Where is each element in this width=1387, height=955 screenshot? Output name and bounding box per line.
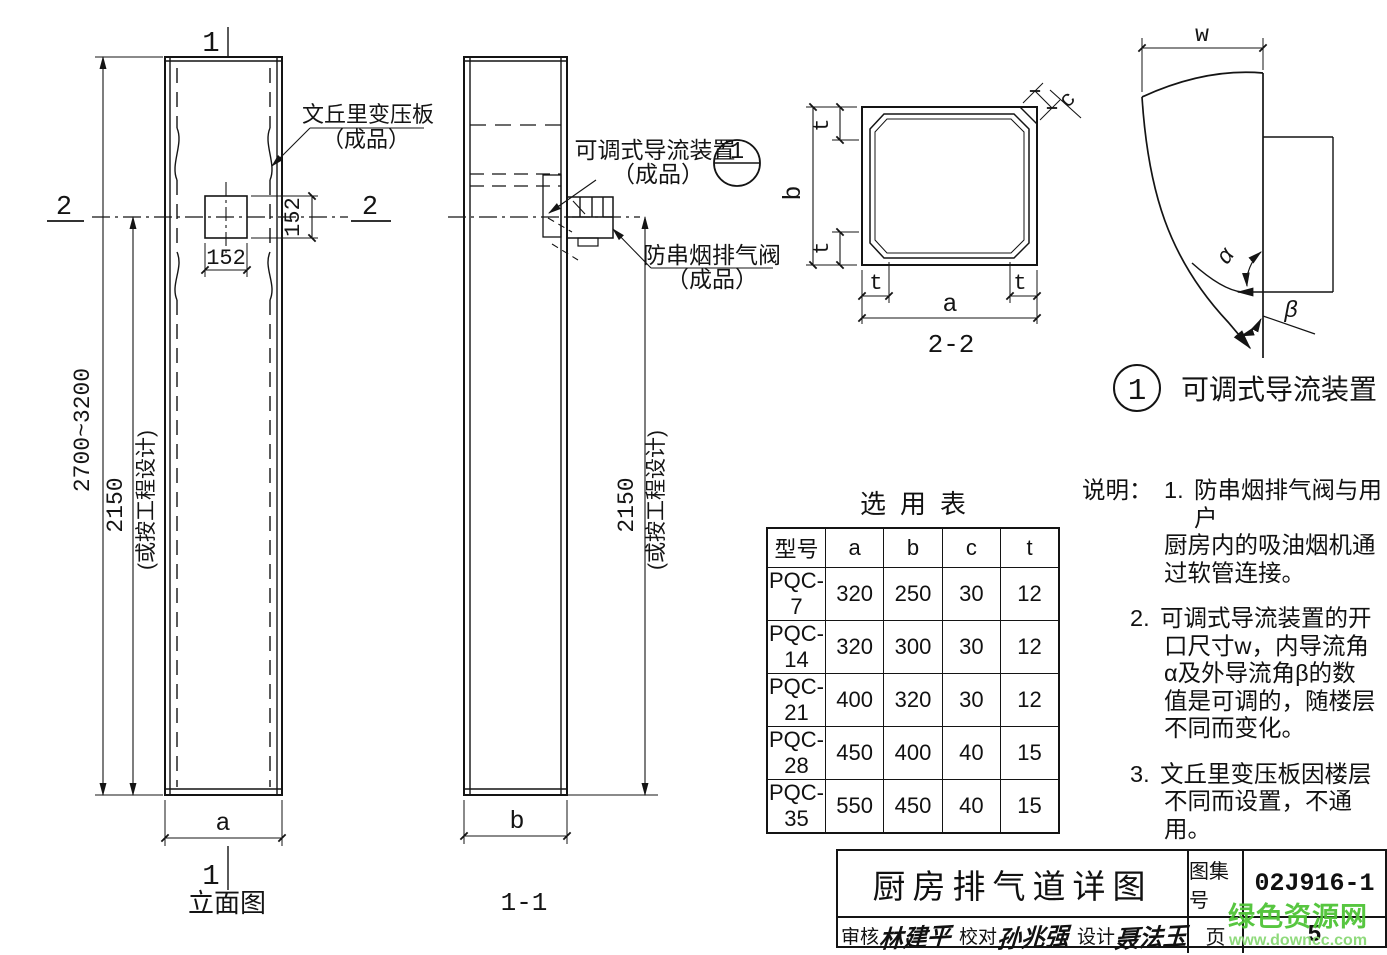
detail-1-view: [1114, 38, 1333, 411]
drawing-title: 厨房排气道详图: [838, 851, 1187, 916]
detail-bubble-number: 1: [1128, 374, 1147, 409]
table-row: PQC-28 450 400 40 15: [767, 727, 1059, 780]
section22-title: 2-2: [928, 330, 975, 360]
cell-model: PQC-7: [767, 568, 825, 621]
cell-c: 30: [942, 621, 1000, 674]
note-item: 说明： 1. 防串烟排气阀与用户 厨房内的吸油烟机通 过软管连接。: [1082, 477, 1387, 587]
section11-height-note: (或按工程设计): [645, 430, 668, 570]
reviewer-signature: 林建平: [878, 916, 952, 955]
notes-label: 说明：: [1082, 477, 1164, 532]
note-line: 可调式导流装置的开: [1160, 605, 1372, 633]
cell-a: 320: [825, 621, 883, 674]
note-line: 口尺寸w，内导流角: [1164, 633, 1387, 661]
cell-a: 450: [825, 727, 883, 780]
dim-w-label: w: [1195, 22, 1209, 48]
dim-b-label: b: [779, 185, 808, 200]
col-header-b: b: [884, 528, 942, 568]
cell-b: 250: [884, 568, 942, 621]
signature-row: 审核 林建平 校对 孙兆强 设计 聂法玉: [838, 916, 1187, 953]
scanned-drawing-page: { "drawing": { "elevation": { "label": "…: [0, 0, 1387, 948]
section-2-mark-left: 2: [56, 193, 72, 223]
cell-t: 12: [1001, 568, 1059, 621]
note-item: 3. 文丘里变压板因楼层 不同而设置，不通用。: [1082, 761, 1387, 844]
cell-t: 12: [1001, 674, 1059, 727]
cell-t: 15: [1001, 727, 1059, 780]
cell-model: PQC-21: [767, 674, 825, 727]
col-header-c: c: [942, 528, 1000, 568]
note-number: 2.: [1130, 605, 1160, 633]
cell-c: 40: [942, 727, 1000, 780]
section-1-mark-top: 1: [202, 27, 219, 60]
note-number: 3.: [1130, 761, 1160, 789]
cell-t: 12: [1001, 621, 1059, 674]
section-1-1-labels: 可调式导流装置 （成品） 1 防串烟排气阀 （成品） 2150 (或按工程设计)…: [501, 137, 781, 918]
angle-beta-label: β: [1283, 298, 1298, 324]
cell-model: PQC-14: [767, 621, 825, 674]
page-label: 页: [1187, 916, 1242, 953]
dim-t-bottom-2: t: [1013, 271, 1026, 296]
detail-1-labels: w α β 1 可调式导流装置: [1128, 22, 1377, 409]
cell-a: 320: [825, 568, 883, 621]
section11-title: 1-1: [501, 888, 548, 918]
cell-c: 40: [942, 780, 1000, 834]
dim-c-label: c: [1055, 87, 1082, 114]
col-header-model: 型号: [767, 528, 825, 568]
detail-title: 可调式导流装置: [1181, 374, 1377, 405]
valve-callout-line1: 防串烟排气阀: [643, 242, 781, 268]
cell-b: 320: [884, 674, 942, 727]
cell-b: 400: [884, 727, 942, 780]
venturi-callout-line1: 文丘里变压板: [302, 102, 434, 127]
note-line: 不同而变化。: [1164, 715, 1387, 743]
table-row: PQC-35 550 450 40 15: [767, 780, 1059, 834]
designer-label: 设计: [1077, 922, 1115, 949]
deflector-callout-line1: 可调式导流装置: [575, 137, 736, 163]
dim-t-bottom-1: t: [869, 271, 882, 296]
note-line: α及外导流角β的数: [1164, 660, 1387, 688]
table-row: PQC-21 400 320 30 12: [767, 674, 1059, 727]
checker-signature: 孙兆强: [996, 916, 1070, 955]
venturi-callout-line2: （成品）: [322, 127, 410, 152]
cell-c: 30: [942, 674, 1000, 727]
note-line: 值是可调的，随楼层: [1164, 688, 1387, 716]
checker-label: 校对: [959, 922, 997, 949]
dim-t-top-left: t: [810, 118, 835, 131]
dim-t-bottom-left: t: [810, 241, 835, 254]
table-row: PQC-7 320 250 30 12: [767, 568, 1059, 621]
cell-model: PQC-28: [767, 727, 825, 780]
section-2-mark-right: 2: [362, 193, 378, 223]
opening-width-dim: 152: [206, 246, 246, 271]
opening-height-dim: 152: [281, 197, 306, 237]
selection-table-title: 选用表: [766, 484, 1060, 521]
section11-height-dim: 2150: [614, 477, 640, 532]
note-line: 不同而设置，不通用。: [1164, 788, 1387, 843]
cell-b: 450: [884, 780, 942, 834]
angle-alpha-label: α: [1211, 242, 1241, 269]
note-line: 厨房内的吸油烟机通: [1164, 532, 1387, 560]
total-height-dim: 2700~3200: [70, 368, 96, 492]
elevation-view: [47, 27, 424, 890]
table-header-row: 型号 a b c t: [767, 528, 1059, 568]
cell-model: PQC-35: [767, 780, 825, 834]
section-2-2-view: [806, 83, 1081, 324]
cell-b: 300: [884, 621, 942, 674]
title-block: 厨房排气道详图 图集号 02J916-1 审核 林建平 校对 孙兆强 设计 聂法…: [836, 849, 1387, 948]
valve-callout-line2: （成品）: [666, 266, 758, 292]
section-1-1-view: [448, 57, 773, 844]
selection-table-section: 选用表 型号 a b c t PQC-7 320 250 30 12 PQC-1…: [766, 484, 1060, 834]
height-dim: 2150: [103, 477, 129, 532]
note-line: 文丘里变压板因楼层: [1160, 761, 1372, 789]
width-dim-b: b: [509, 807, 524, 836]
dim-a-label: a: [942, 290, 957, 319]
cell-a: 550: [825, 780, 883, 834]
deflector-callout-line2: （成品）: [612, 161, 704, 187]
note-item: 2. 可调式导流装置的开 口尺寸w，内导流角 α及外导流角β的数 值是可调的，随…: [1082, 605, 1387, 743]
reviewer-label: 审核: [841, 922, 879, 949]
notes-block: 说明： 1. 防串烟排气阀与用户 厨房内的吸油烟机通 过软管连接。 2. 可调式…: [1082, 477, 1387, 843]
height-dim-note: (或按工程设计): [135, 430, 158, 570]
col-header-a: a: [825, 528, 883, 568]
designer-signature: 聂法玉: [1114, 916, 1188, 955]
elevation-labels: 1 1 2 2 文丘里变压板 （成品） 152 152 2700~3200 21…: [56, 27, 434, 918]
cell-c: 30: [942, 568, 1000, 621]
note-line: 防串烟排气阀与用户: [1194, 477, 1387, 532]
page-number: 5: [1242, 916, 1385, 953]
detail-ref-bubble-number: 1: [730, 139, 744, 166]
selection-table: 型号 a b c t PQC-7 320 250 30 12 PQC-14 32…: [766, 527, 1060, 834]
atlas-number: 02J916-1: [1242, 851, 1385, 916]
note-number: 1.: [1164, 477, 1194, 532]
atlas-number-label: 图集号: [1187, 851, 1242, 916]
table-row: PQC-14 320 300 30 12: [767, 621, 1059, 674]
width-dim-a: a: [215, 809, 230, 838]
col-header-t: t: [1001, 528, 1059, 568]
elevation-title: 立面图: [188, 888, 266, 918]
cell-a: 400: [825, 674, 883, 727]
cell-t: 15: [1001, 780, 1059, 834]
note-line: 过软管连接。: [1164, 560, 1387, 588]
